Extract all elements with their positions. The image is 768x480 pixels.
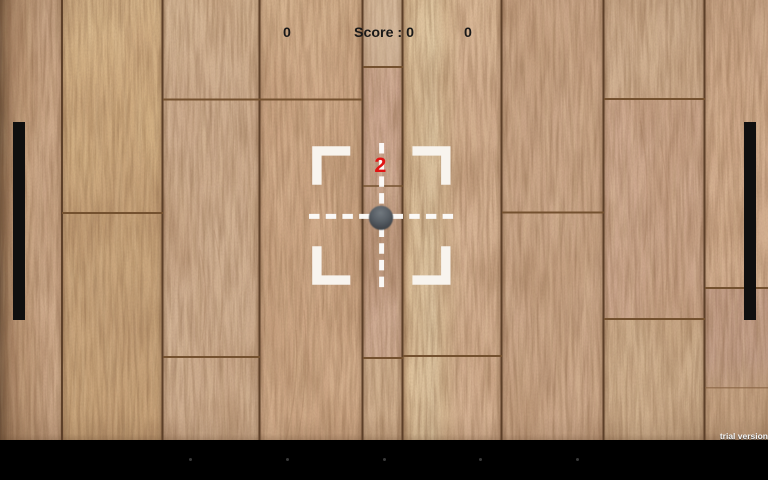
svg-text:2: 2 [374,153,386,177]
